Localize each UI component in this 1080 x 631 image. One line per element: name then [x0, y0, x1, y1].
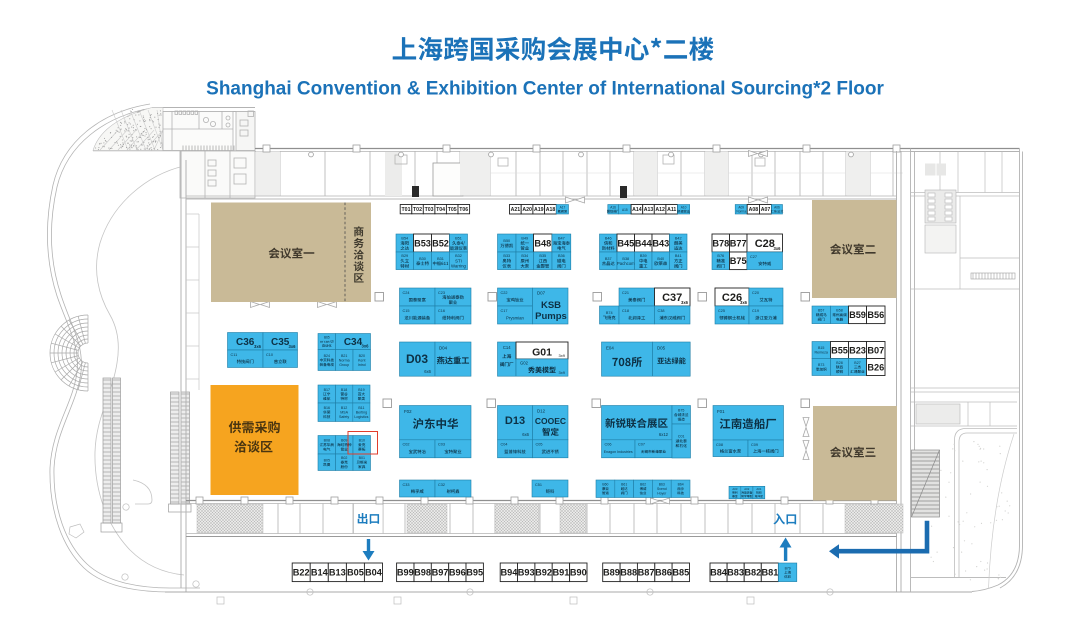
svg-text:B45: B45 — [617, 238, 634, 248]
svg-text:B42: B42 — [675, 236, 682, 240]
svg-text:KSB: KSB — [541, 300, 561, 311]
svg-text:B14: B14 — [311, 568, 329, 578]
svg-text:C21: C21 — [622, 291, 629, 295]
svg-text:B86: B86 — [655, 568, 672, 578]
svg-text:6x6: 6x6 — [522, 432, 529, 437]
svg-text:B10: B10 — [359, 439, 365, 443]
svg-text:6x12: 6x12 — [659, 432, 669, 437]
svg-text:3x6: 3x6 — [774, 246, 782, 251]
svg-text:B28: B28 — [836, 361, 842, 365]
svg-text:B85: B85 — [672, 568, 689, 578]
svg-text:B81: B81 — [761, 568, 778, 578]
svg-text:B36: B36 — [558, 254, 565, 258]
svg-text:A07: A07 — [761, 207, 771, 213]
svg-text:B50: B50 — [503, 239, 510, 243]
svg-text:Introl: Introl — [358, 363, 366, 367]
svg-text:C04: C04 — [501, 443, 508, 447]
svg-text:B76: B76 — [717, 254, 724, 258]
svg-text:B48: B48 — [534, 238, 551, 248]
svg-text:C14: C14 — [503, 345, 511, 350]
svg-text:B16: B16 — [324, 406, 330, 410]
svg-text:D13: D13 — [505, 415, 525, 427]
svg-text:Berting: Berting — [356, 411, 367, 415]
svg-text:Pumps: Pumps — [535, 311, 567, 322]
svg-text:B77: B77 — [730, 238, 747, 248]
svg-text:B12: B12 — [341, 406, 347, 410]
svg-text:B55: B55 — [831, 345, 848, 355]
svg-text:G01: G01 — [532, 347, 552, 359]
svg-text:C20: C20 — [752, 291, 759, 295]
svg-text:B84: B84 — [710, 568, 728, 578]
svg-text:3x6: 3x6 — [362, 343, 370, 348]
svg-text:B05: B05 — [324, 458, 330, 462]
svg-text:B08: B08 — [324, 439, 330, 443]
svg-text:Prysmian: Prysmian — [506, 315, 525, 320]
svg-text:B92: B92 — [535, 568, 552, 578]
svg-text:A20: A20 — [522, 207, 532, 213]
svg-text:C03: C03 — [438, 443, 445, 447]
svg-text:B62: B62 — [640, 483, 646, 487]
svg-text:C22: C22 — [501, 291, 508, 295]
svg-text:B21: B21 — [341, 354, 347, 358]
svg-text:T03: T03 — [425, 207, 434, 213]
svg-text:B75: B75 — [730, 256, 747, 266]
svg-text:Logistics: Logistics — [354, 415, 368, 419]
svg-text:B96: B96 — [449, 568, 466, 578]
svg-text:B51: B51 — [455, 236, 462, 240]
svg-text:Norma: Norma — [339, 358, 350, 362]
svg-text:COOEC: COOEC — [535, 416, 566, 426]
svg-text:A15: A15 — [622, 208, 628, 212]
svg-text:A12: A12 — [655, 207, 665, 213]
svg-text:B87: B87 — [638, 568, 655, 578]
svg-text:B58: B58 — [836, 309, 842, 313]
svg-text:Warring: Warring — [451, 264, 466, 269]
svg-text:B04: B04 — [365, 568, 383, 578]
svg-text:3x9: 3x9 — [559, 370, 566, 375]
svg-text:B13: B13 — [329, 568, 346, 578]
svg-text:B82: B82 — [744, 568, 761, 578]
svg-text:T01: T01 — [402, 207, 411, 213]
svg-text:B93: B93 — [518, 568, 535, 578]
svg-text:B99: B99 — [397, 568, 414, 578]
svg-text:B23: B23 — [849, 345, 866, 355]
svg-text:B98: B98 — [414, 568, 431, 578]
svg-text:B19: B19 — [358, 388, 364, 392]
svg-text:C34: C34 — [344, 337, 363, 348]
svg-text:C16: C16 — [438, 309, 445, 313]
svg-text:D07: D07 — [537, 291, 546, 296]
svg-text:B30: B30 — [419, 257, 426, 261]
svg-text:B07: B07 — [867, 345, 884, 355]
svg-text:A16: A16 — [610, 205, 616, 209]
svg-text:B01: B01 — [359, 456, 365, 460]
svg-text:C18: C18 — [622, 309, 629, 313]
svg-text:B75: B75 — [678, 409, 684, 413]
svg-text:B44: B44 — [635, 238, 653, 248]
svg-text:T04: T04 — [436, 207, 445, 213]
svg-text:C37: C37 — [662, 292, 682, 304]
svg-text:D04: D04 — [439, 346, 448, 351]
svg-text:C17: C17 — [501, 309, 508, 313]
svg-text:A08: A08 — [749, 207, 759, 213]
svg-text:A02: A02 — [744, 487, 749, 491]
svg-text:B24: B24 — [324, 354, 330, 358]
svg-text:B57: B57 — [818, 309, 824, 313]
svg-text:T05: T05 — [448, 207, 457, 213]
svg-text:B17: B17 — [324, 388, 330, 392]
svg-text:F02: F02 — [404, 409, 412, 414]
svg-text:B88: B88 — [620, 568, 637, 578]
svg-text:B78: B78 — [712, 238, 729, 248]
svg-text:B52: B52 — [432, 238, 449, 248]
svg-text:Safety: Safety — [339, 415, 349, 419]
svg-text:B43: B43 — [652, 238, 669, 248]
svg-text:C06: C06 — [605, 443, 612, 447]
svg-text:C28: C28 — [755, 238, 775, 250]
svg-text:E04: E04 — [606, 346, 614, 351]
svg-text:B89: B89 — [603, 568, 620, 578]
svg-text:B20: B20 — [359, 354, 365, 358]
svg-text:T06: T06 — [459, 207, 468, 213]
svg-text:C27: C27 — [750, 255, 757, 259]
svg-text:B15: B15 — [818, 346, 824, 350]
svg-text:B65: B65 — [324, 336, 330, 340]
svg-text:B29: B29 — [401, 254, 408, 258]
svg-text:B27: B27 — [854, 361, 860, 365]
svg-text:C38: C38 — [658, 309, 665, 313]
svg-text:C23: C23 — [438, 291, 445, 295]
svg-text:B74: B74 — [606, 311, 613, 315]
svg-text:MSA: MSA — [340, 411, 348, 415]
svg-text:Pachcom: Pachcom — [617, 261, 635, 266]
svg-text:A11: A11 — [667, 207, 676, 213]
svg-text:B56: B56 — [867, 310, 884, 320]
svg-text:B94: B94 — [500, 568, 518, 578]
svg-text:B46: B46 — [605, 236, 612, 240]
svg-text:C09: C09 — [751, 443, 758, 447]
svg-text:T02: T02 — [413, 207, 422, 213]
svg-text:A10: A10 — [681, 205, 687, 209]
svg-text:B34: B34 — [521, 254, 528, 258]
svg-text:C05: C05 — [536, 443, 543, 447]
svg-text:B26: B26 — [867, 362, 884, 372]
svg-text:A06: A06 — [774, 205, 780, 209]
svg-text:A03: A03 — [732, 487, 737, 491]
svg-text:B90: B90 — [570, 568, 587, 578]
svg-text:B40: B40 — [657, 257, 664, 261]
svg-text:B61: B61 — [621, 483, 627, 487]
svg-text:G02: G02 — [520, 361, 529, 366]
svg-text:B79: B79 — [785, 566, 791, 570]
svg-text:A14: A14 — [632, 207, 642, 213]
svg-text:B91: B91 — [552, 568, 569, 578]
svg-text:B83: B83 — [727, 568, 744, 578]
svg-text:C10: C10 — [266, 353, 273, 357]
svg-text:Remeza: Remeza — [815, 351, 828, 355]
svg-text:B64: B64 — [678, 483, 684, 487]
svg-text:A18: A18 — [546, 207, 556, 213]
svg-text:C15: C15 — [403, 309, 410, 313]
svg-text:B18: B18 — [341, 388, 347, 392]
svg-text:B02: B02 — [341, 456, 347, 460]
svg-text:C32: C32 — [438, 483, 445, 487]
svg-text:B59: B59 — [849, 310, 866, 320]
svg-text:6x6: 6x6 — [424, 369, 431, 374]
svg-text:3x6: 3x6 — [740, 300, 748, 305]
svg-text:D05: D05 — [657, 346, 666, 351]
svg-text:B47: B47 — [558, 236, 565, 240]
svg-text:B22: B22 — [293, 568, 310, 578]
svg-text:C25: C25 — [718, 309, 725, 313]
svg-text:B31: B31 — [437, 257, 444, 261]
svg-text:F01: F01 — [717, 409, 725, 414]
svg-text:B53: B53 — [414, 238, 431, 248]
svg-text:D12: D12 — [537, 409, 546, 414]
svg-text:A17: A17 — [560, 205, 566, 209]
svg-text:3x6: 3x6 — [681, 300, 689, 305]
svg-text:A13: A13 — [644, 207, 654, 213]
svg-text:C36: C36 — [236, 337, 255, 348]
svg-text:C02: C02 — [403, 443, 410, 447]
svg-text:Group: Group — [339, 363, 349, 367]
svg-text:Enagon Industries: Enagon Industries — [604, 450, 633, 454]
svg-text:3x6: 3x6 — [254, 344, 262, 349]
svg-text:B60: B60 — [602, 483, 608, 487]
svg-text:B54: B54 — [401, 236, 408, 240]
svg-text:C08: C08 — [716, 443, 723, 447]
svg-text:3x6: 3x6 — [289, 344, 297, 349]
svg-text:Shanghai Convention & Exhibiti: Shanghai Convention & Exhibition Center … — [206, 79, 884, 100]
svg-text:A01: A01 — [756, 487, 761, 491]
svg-text:C35: C35 — [271, 337, 290, 348]
svg-text:B39: B39 — [640, 254, 647, 258]
svg-text:Hoyer: Hoyer — [657, 491, 667, 495]
svg-text:B11: B11 — [358, 406, 364, 410]
svg-text:3x9: 3x9 — [559, 353, 566, 358]
svg-text:Kent: Kent — [358, 358, 365, 362]
svg-text:A21: A21 — [511, 207, 521, 213]
svg-text:C11: C11 — [231, 353, 238, 357]
svg-text:C24: C24 — [403, 291, 410, 295]
svg-text:B97: B97 — [432, 568, 449, 578]
svg-text:D03: D03 — [406, 352, 428, 366]
svg-text:C01: C01 — [678, 435, 685, 439]
svg-text:Norma: Norma — [736, 210, 746, 214]
svg-text:A19: A19 — [534, 207, 544, 213]
svg-text:B09: B09 — [341, 439, 347, 443]
svg-text:B95: B95 — [466, 568, 483, 578]
svg-text:B73: B73 — [818, 363, 824, 367]
svg-text:B41: B41 — [675, 254, 682, 258]
svg-text:C07: C07 — [638, 443, 645, 447]
svg-text:B49: B49 — [521, 236, 528, 240]
svg-text:C51: C51 — [535, 483, 542, 487]
svg-text:C19: C19 — [752, 309, 759, 313]
svg-text:B33: B33 — [503, 254, 510, 258]
svg-text:C33: C33 — [403, 483, 410, 487]
svg-text:B35: B35 — [539, 254, 546, 258]
svg-text:B05: B05 — [347, 568, 364, 578]
svg-text:B37: B37 — [605, 257, 612, 261]
